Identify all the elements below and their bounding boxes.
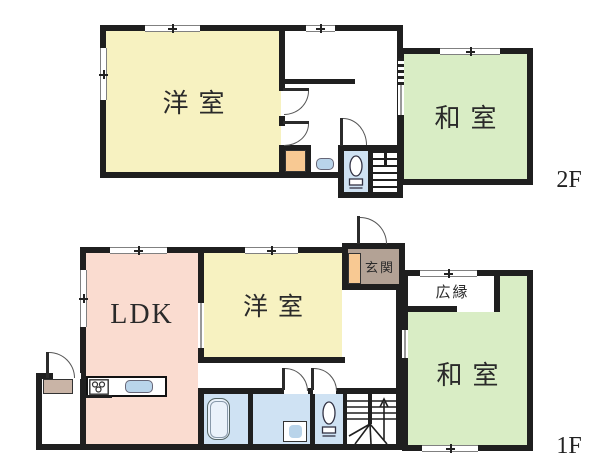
toilet-icon [347, 153, 365, 191]
wall-segment [283, 79, 355, 84]
tick-mark [316, 24, 325, 33]
room-1f-japanese-label: 和室 [408, 318, 527, 428]
room-1f-entrance-label: 玄関 [360, 250, 400, 282]
wall-segment [306, 150, 311, 172]
stove-icon [89, 379, 109, 395]
floor-plan: 洋室 和室 2F [0, 0, 600, 466]
stairs-1f [347, 394, 396, 444]
entrance-door-arc [360, 217, 387, 244]
sliding-door-line [404, 330, 406, 358]
porch-step [43, 379, 73, 394]
tick-mark [446, 444, 455, 453]
closet-2f [285, 150, 306, 172]
wall-segment [86, 395, 112, 398]
room-1f-ldk-label: LDK [86, 253, 198, 377]
washbasin-icon [316, 158, 334, 170]
floor-label-1f: 1F [543, 431, 595, 461]
room-1f-japanese-upper [500, 276, 527, 312]
room-2f-japanese-label: 和室 [404, 54, 527, 179]
toilet-icon [320, 399, 338, 439]
door-arc [49, 352, 75, 378]
room-1f-veranda-label: 広縁 [408, 276, 497, 306]
wall-segment [198, 357, 345, 363]
room-1f-western-label: 洋室 [204, 253, 342, 357]
bathtub-inner [210, 401, 228, 438]
sink-icon [125, 380, 153, 393]
wall-segment [405, 306, 457, 312]
washing-machine-drum [289, 425, 302, 438]
stair-divider [384, 151, 387, 165]
sliding-door-line [200, 303, 202, 348]
sliding-door-line [400, 85, 402, 115]
room-2f-western-label: 洋室 [106, 31, 281, 172]
floor-label-2f: 2F [543, 165, 595, 195]
